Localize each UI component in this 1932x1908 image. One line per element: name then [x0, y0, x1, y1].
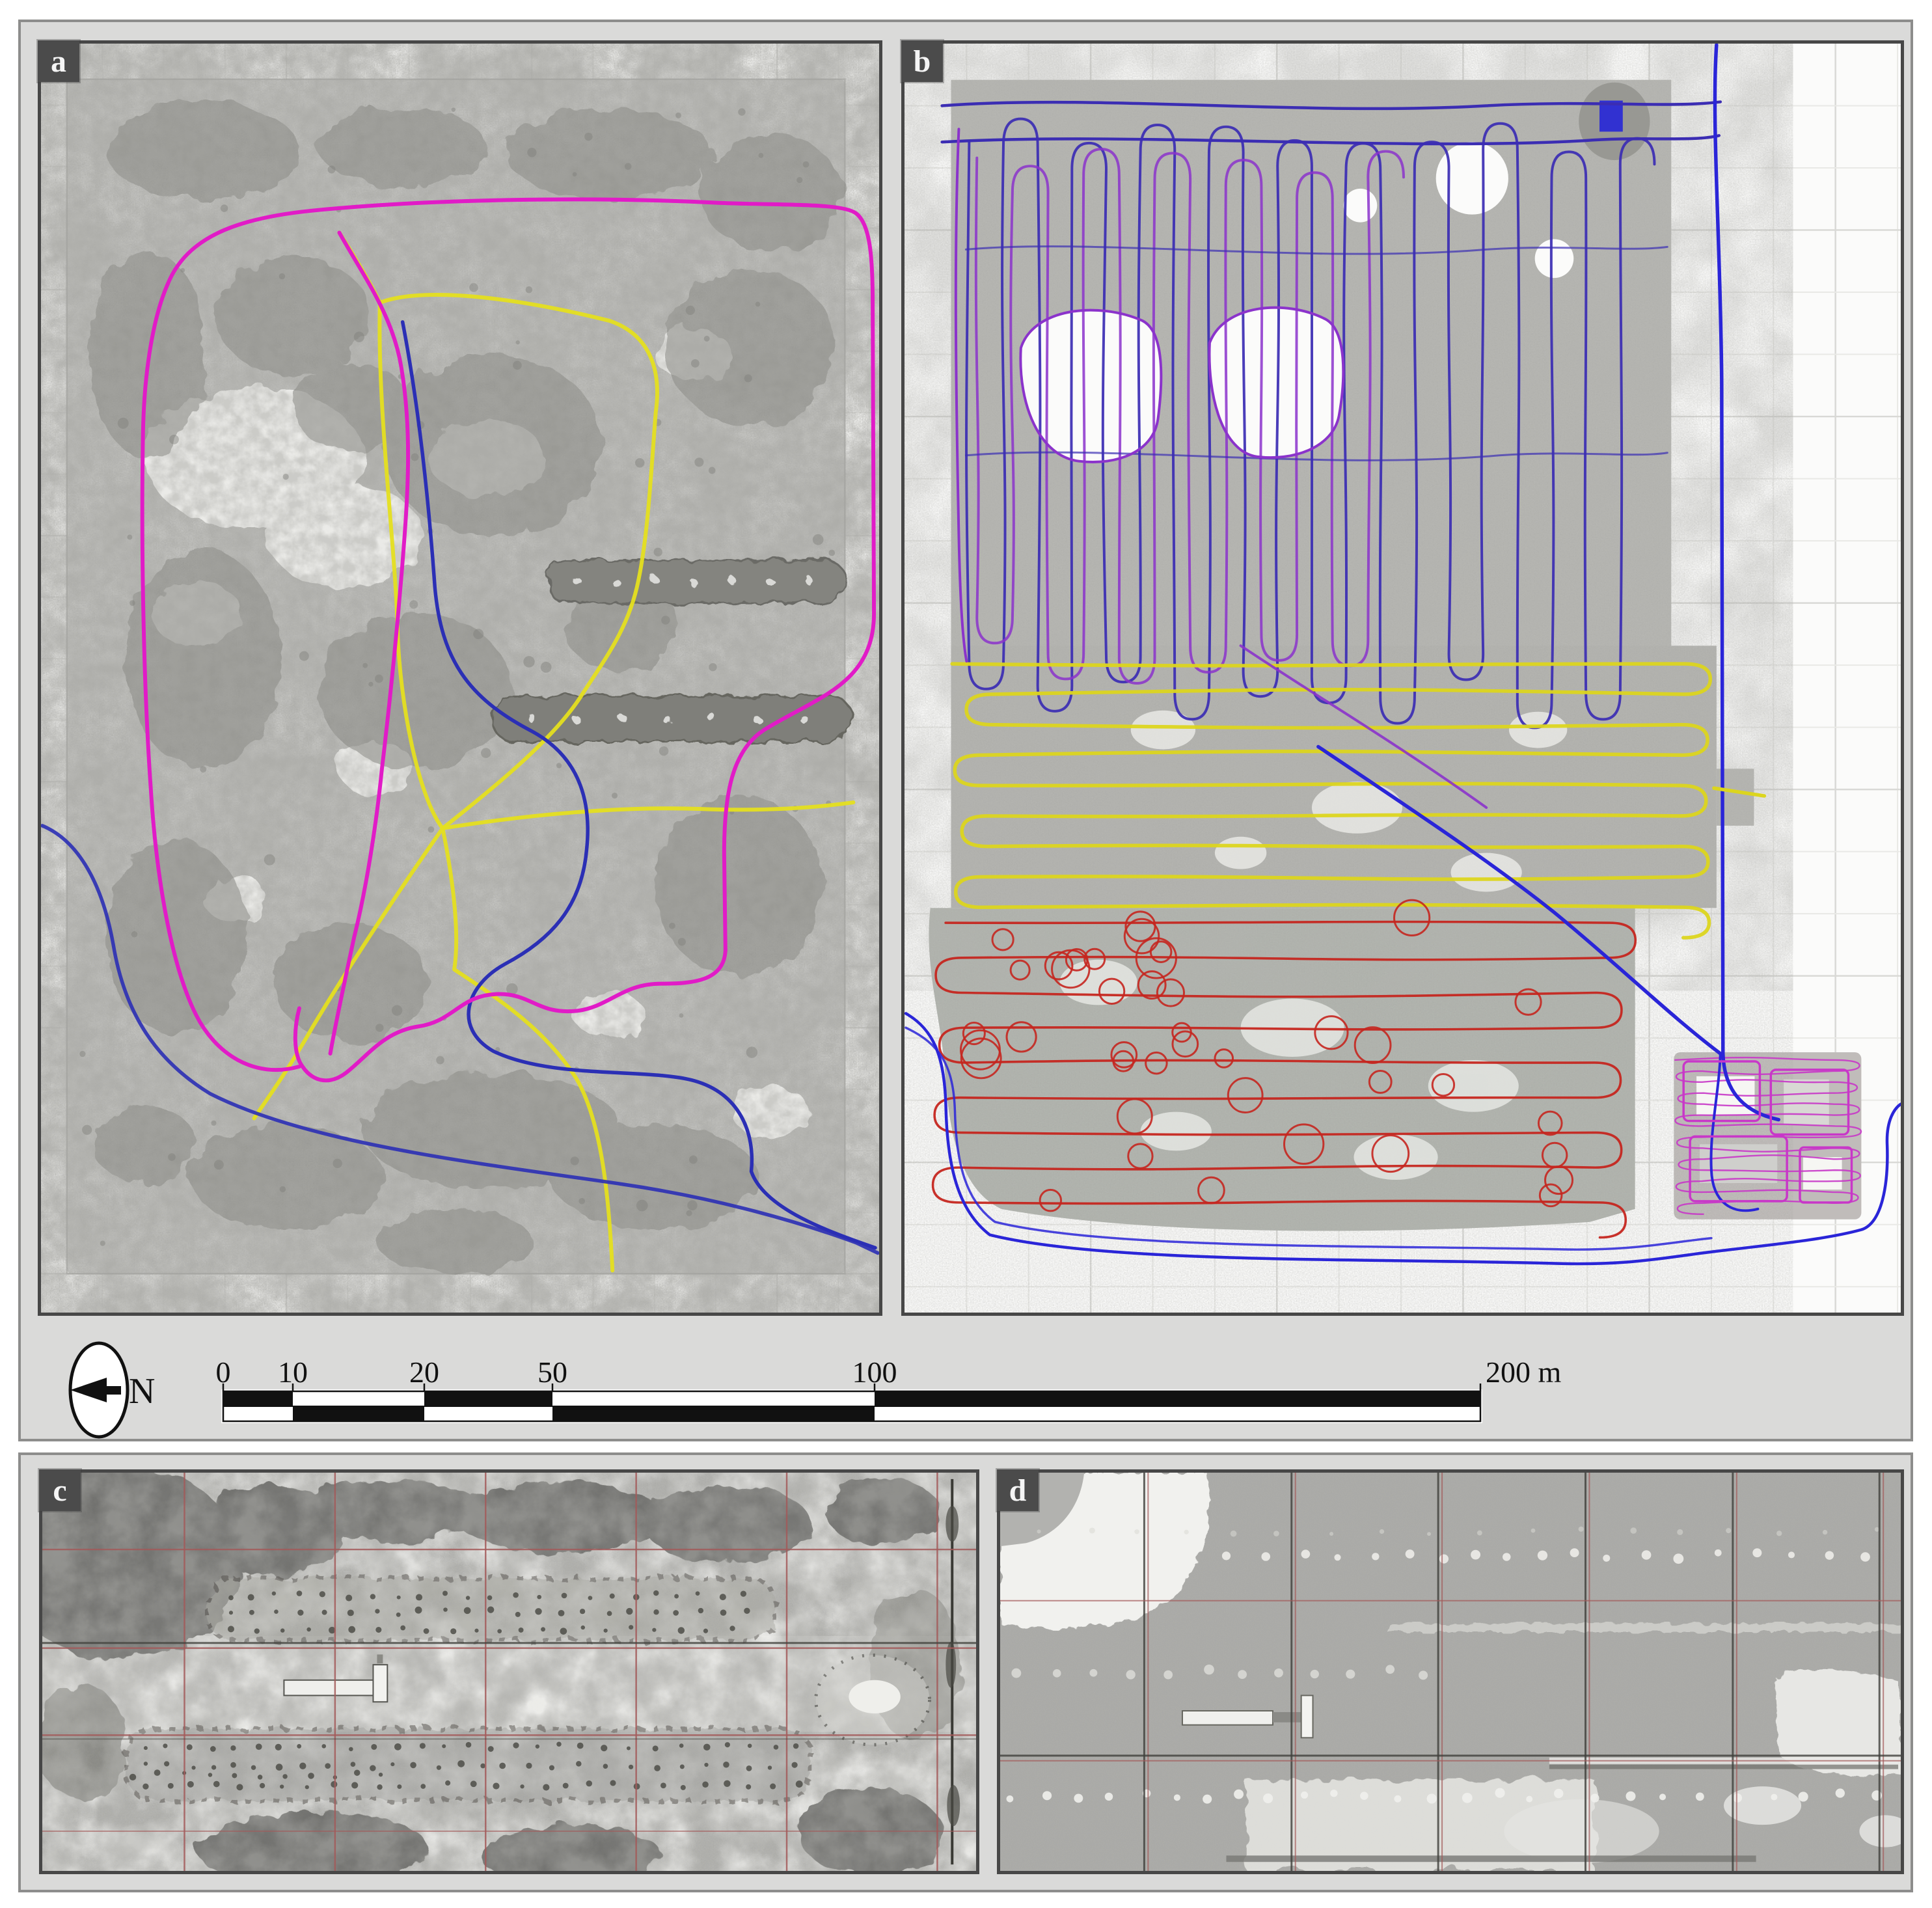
panel-b-map: [901, 40, 1904, 1316]
panel-c-svg: [42, 1473, 976, 1871]
panel-a-svg: [41, 44, 879, 1313]
panel-a-map: [38, 40, 882, 1316]
north-arrow-icon: N: [70, 1343, 155, 1437]
north-label: N: [129, 1371, 155, 1411]
panel-d-letter: d: [1009, 1473, 1027, 1508]
panel-d-map: [997, 1469, 1904, 1874]
panel-c-label: c: [39, 1469, 81, 1511]
scale-tick-label: 0: [216, 1356, 231, 1389]
panel-b-letter: b: [914, 44, 931, 79]
panel-a-letter: a: [51, 44, 66, 79]
scale-tick-label: 200 m: [1486, 1356, 1562, 1389]
panel-d-svg: [1000, 1473, 1901, 1871]
panel-b-label: b: [901, 40, 943, 82]
scale-bar: 0102050100200 m: [216, 1356, 1562, 1423]
figure-stage: a b: [0, 0, 1932, 1908]
dashed-oval-feature: [816, 1655, 930, 1745]
scalebar-strip: N0102050100200 m: [0, 1328, 1932, 1451]
scale-tick-label: 50: [537, 1356, 567, 1389]
panel-b-svg: [905, 44, 1901, 1313]
panel-a-label: a: [38, 40, 79, 82]
panel-c-letter: c: [53, 1473, 66, 1508]
panel-d-label: d: [997, 1469, 1039, 1511]
dark-streak: [1226, 1855, 1756, 1862]
scale-tick-label: 10: [278, 1356, 308, 1389]
scale-tick-label: 100: [852, 1356, 897, 1389]
dark-streak-2: [1549, 1765, 1898, 1769]
panel-c-map: [39, 1469, 979, 1874]
scale-tick-label: 20: [409, 1356, 439, 1389]
